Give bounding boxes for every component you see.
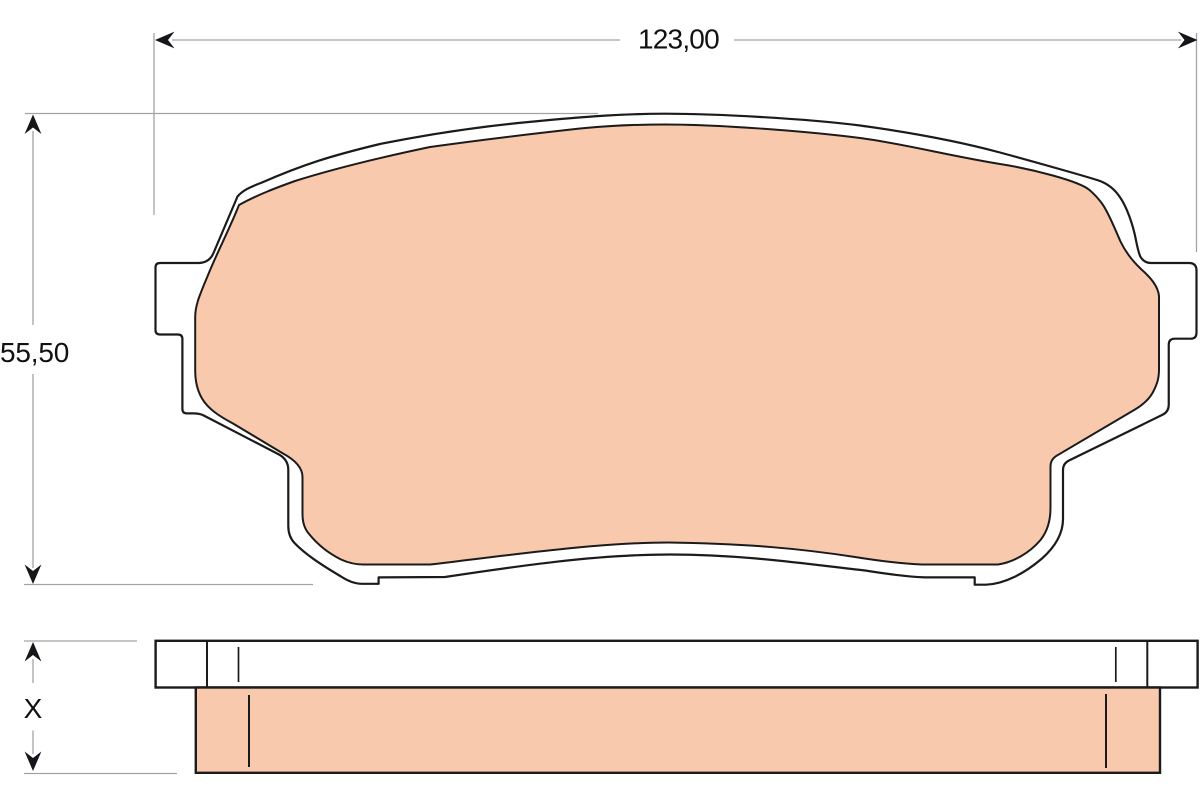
svg-text:X: X [24,693,43,724]
svg-text:123,00: 123,00 [638,24,719,55]
svg-text:55,50: 55,50 [0,337,69,368]
